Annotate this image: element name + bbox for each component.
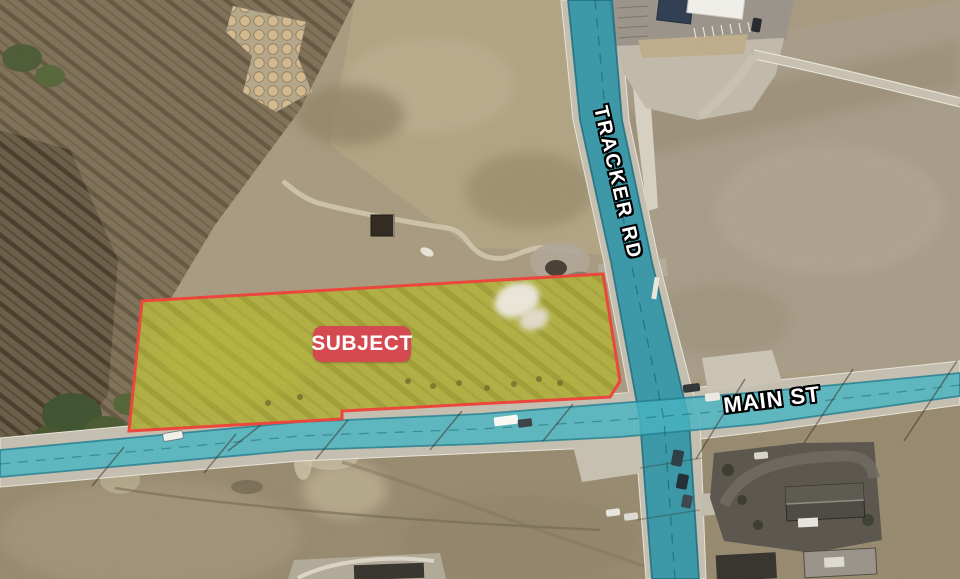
aerial-map: TRACKER RD MAIN ST SUBJECT — [0, 0, 960, 579]
aerial-imagery-svg — [0, 0, 960, 579]
photo-grain — [0, 0, 960, 579]
subject-badge: SUBJECT — [313, 326, 411, 362]
